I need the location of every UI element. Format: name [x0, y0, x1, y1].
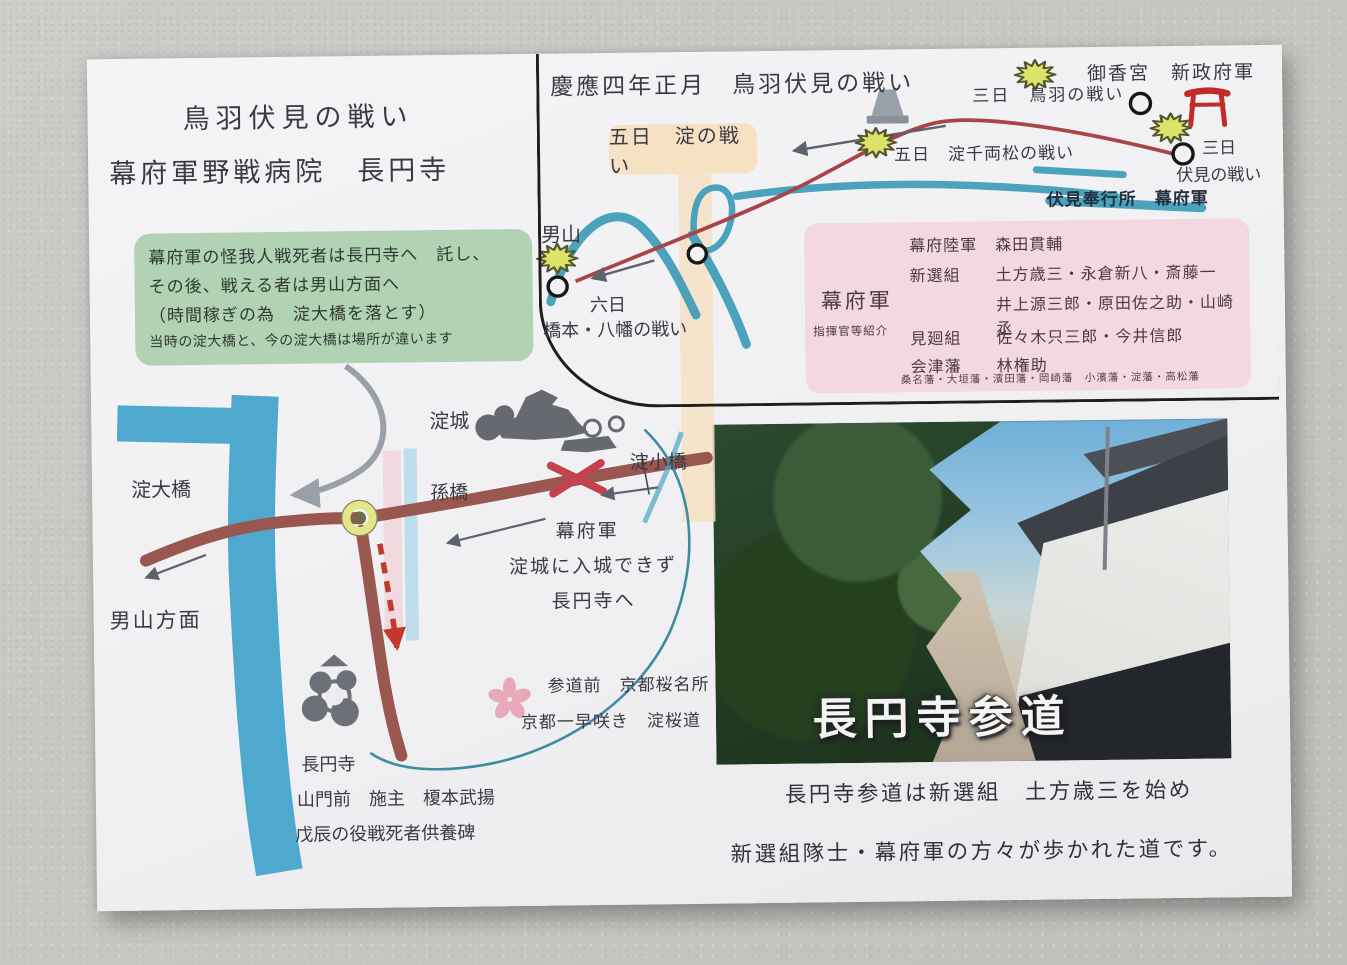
battle-site-circle-icon	[1130, 93, 1150, 113]
label-magobashi: 孫橋	[430, 483, 468, 506]
route-note-line1: 幕府軍	[556, 521, 619, 545]
sakura-note-line2: 京都一早咲き 淀桜道	[521, 711, 701, 734]
label-fushimi-bugyosho: 伏見奉行所 幕府軍	[1047, 189, 1209, 211]
battle-site-circle-icon	[688, 245, 706, 263]
label-yodo-castle: 淀城	[429, 410, 469, 434]
footer-line2: 新選組隊士・幕府軍の方々が歩かれた道です。	[730, 831, 1232, 868]
route-note-line2: 淀城に入城できず	[509, 555, 677, 580]
label-yodo-kobashi: 淀小橋	[630, 452, 687, 475]
page-subtitle: 幕府軍野戦病院 長円寺	[109, 154, 450, 191]
footer-line1: 長円寺参道は新選組 土方歳三を始め	[785, 773, 1193, 809]
roundabout-icon	[342, 500, 377, 535]
battle-map-title: 慶應四年正月 鳥羽伏見の戦い	[550, 69, 914, 101]
castle-stamp-icon	[475, 389, 624, 454]
choenji-note-line2: 山門前 施主 榎本武揚	[297, 787, 495, 811]
battle-site-circle-icon	[1173, 144, 1193, 164]
route-note-line3: 長円寺へ	[551, 591, 635, 615]
label-senryomatsu-battle: 五日 淀千両松の戦い	[894, 143, 1074, 166]
choenji-note-line3: 戊辰の役戦死者供養碑	[295, 823, 475, 847]
label-muika: 六日	[590, 295, 626, 317]
sakura-note-line1: 参道前 京都桜名所	[547, 675, 709, 697]
torii-gate-icon	[1187, 90, 1227, 124]
battle-burst-icon	[1150, 113, 1191, 143]
note-box-pointer-arrow	[293, 366, 385, 495]
battle-site-circle-icon	[548, 277, 567, 296]
label-fushimi-battle: 伏見の戦い	[1176, 165, 1261, 186]
label-toba-battle: 三日 鳥羽の戦い	[972, 85, 1124, 107]
info-card: 鳥羽伏見の戦い 幕府軍野戦病院 長円寺 幕府軍の怪我人戦死者は長円寺へ 託し、 …	[87, 45, 1292, 912]
magobashi-stream	[404, 448, 419, 640]
photo-of-card-background: 鳥羽伏見の戦い 幕府軍野戦病院 長円寺 幕府軍の怪我人戦死者は長円寺へ 託し、 …	[0, 0, 1347, 965]
label-otokoyama: 男山	[541, 223, 581, 247]
label-fushimi-day: 三日	[1202, 138, 1236, 159]
label-gokonomiya: 御香宮 新政府軍	[1087, 62, 1255, 87]
temple-stamp-icon	[301, 654, 359, 727]
label-yodo-ohashi: 淀大橋	[131, 478, 191, 503]
choenji-note-line1: 長円寺	[301, 754, 355, 776]
page-title: 鳥羽伏見の戦い	[182, 100, 413, 135]
label-otokoyama-direction: 男山方面	[110, 608, 202, 634]
label-hashimoto-battle: 橋本・八幡の戦い	[543, 319, 687, 342]
